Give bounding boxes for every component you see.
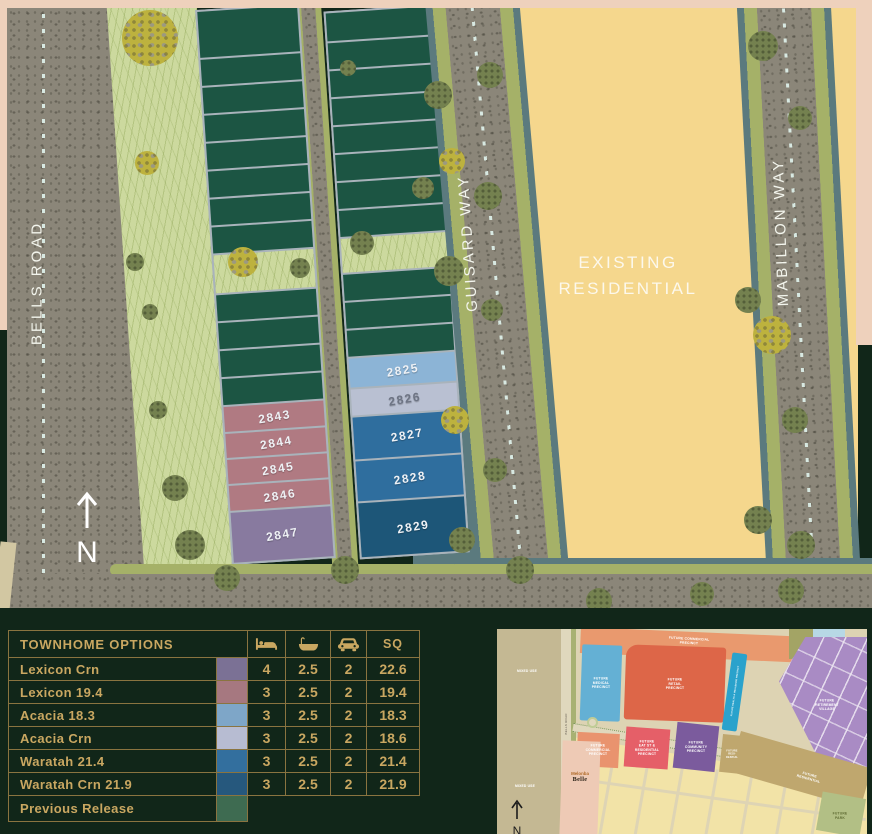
retirement-label: FUTURE RETIREMENT VILLAGE xyxy=(815,699,839,712)
lot-previous-release xyxy=(222,373,324,406)
tree-icon xyxy=(122,10,178,66)
color-swatch xyxy=(216,704,247,726)
lot-number: 2845 xyxy=(260,459,295,478)
car-icon xyxy=(330,631,366,657)
townhome-options-table: TOWNHOME OPTIONS xyxy=(8,630,420,822)
medical-label: FUTURE MEDICAL PRECINCT xyxy=(592,677,611,690)
sq-value: 21.9 xyxy=(366,773,419,795)
tree-icon xyxy=(434,256,464,286)
lot-previous-release xyxy=(210,193,312,226)
estate-block: 2843 2844 2845 2846 2847 xyxy=(106,0,472,608)
table-row: Lexicon Crn 4 2.5 2 22.6 xyxy=(8,657,420,681)
area-label-line2: RESIDENTIAL xyxy=(559,276,698,302)
lot-number: 2827 xyxy=(389,425,424,444)
tree-icon xyxy=(424,81,452,109)
lot-previous-release xyxy=(197,5,300,58)
cars-value: 2 xyxy=(330,704,366,726)
tree-icon xyxy=(214,565,240,591)
lot-number: 2843 xyxy=(257,407,292,426)
lot-number: 2828 xyxy=(392,468,427,487)
bottom-road xyxy=(0,574,872,608)
bed-icon xyxy=(247,631,285,657)
tree-icon xyxy=(331,556,359,584)
tree-icon xyxy=(782,407,808,433)
lot-number: 2826 xyxy=(387,389,422,408)
tree-icon xyxy=(142,304,158,320)
sq-value: 19.4 xyxy=(366,681,419,703)
masterplan-map: 2843 2844 2845 2846 2847 xyxy=(0,0,872,608)
lot-2847[interactable]: 2847 xyxy=(231,506,334,563)
tree-icon xyxy=(135,151,159,175)
lot-2843[interactable]: 2843 xyxy=(224,400,325,432)
belle-logo: Melonba Belle xyxy=(563,767,597,787)
tree-icon xyxy=(690,582,714,606)
tree-icon xyxy=(787,531,815,559)
map-frame-left xyxy=(0,8,7,330)
lot-previous-release xyxy=(216,289,318,322)
lot-number: 2844 xyxy=(259,433,294,452)
lot-number: 2847 xyxy=(265,525,300,544)
tree-icon xyxy=(474,182,502,210)
plan-name: Acacia Crn xyxy=(9,727,216,749)
minimap-north-arrow: N xyxy=(507,797,527,834)
lot-2846[interactable]: 2846 xyxy=(229,479,330,511)
tree-icon xyxy=(744,506,772,534)
color-swatch xyxy=(216,750,247,772)
lot-previous-release xyxy=(218,317,320,350)
tree-icon xyxy=(477,62,503,88)
lot-previous-release xyxy=(206,137,308,170)
table-row: Waratah 21.4 3 2.5 2 21.4 xyxy=(8,749,420,773)
lot-2825[interactable]: 2825 xyxy=(349,352,457,388)
bells-road-label: BELLS ROAD xyxy=(29,221,46,345)
plan-name: Lexicon 19.4 xyxy=(9,681,216,703)
baths-value: 2.5 xyxy=(285,727,330,749)
beds-value: 3 xyxy=(247,681,285,703)
mixed-use-label: MIXED USE xyxy=(517,669,537,673)
previous-release-row: Previous Release xyxy=(8,795,248,822)
plan-name: Waratah Crn 21.9 xyxy=(9,773,216,795)
park-label: FUTURE PARK xyxy=(833,812,848,820)
cars-value: 2 xyxy=(330,750,366,772)
sq-value: 21.4 xyxy=(366,750,419,772)
north-arrow: N xyxy=(66,486,110,570)
beds-value: 3 xyxy=(247,704,285,726)
lot-previous-release xyxy=(200,53,302,86)
table-row: Lexicon 19.4 3 2.5 2 19.4 xyxy=(8,680,420,704)
tree-icon xyxy=(735,287,761,313)
tree-icon xyxy=(753,316,791,354)
table-row: Acacia Crn 3 2.5 2 18.6 xyxy=(8,726,420,750)
retail-label: FUTURE RETAIL PRECINCT xyxy=(666,678,685,691)
bells-road-mini-label: BELLS ROAD xyxy=(564,713,568,734)
baths-value: 2.5 xyxy=(285,681,330,703)
tree-icon xyxy=(441,406,469,434)
lot-previous-release xyxy=(220,345,322,378)
color-swatch xyxy=(216,773,247,795)
lot-previous-release xyxy=(202,81,304,114)
lot-previous-release xyxy=(204,109,306,142)
table-title: TOWNHOME OPTIONS xyxy=(9,631,247,657)
tree-icon xyxy=(778,578,804,604)
svg-text:N: N xyxy=(513,824,522,834)
table-row: Acacia 18.3 3 2.5 2 18.3 xyxy=(8,703,420,727)
roundabout xyxy=(587,717,598,728)
belle-logo-name: Belle xyxy=(569,776,590,783)
mixed-use-label: MIXED USE xyxy=(515,784,535,788)
color-swatch xyxy=(216,727,247,749)
tree-icon xyxy=(449,527,475,553)
tree-icon xyxy=(586,588,612,608)
tree-icon xyxy=(350,231,374,255)
plan-name: Acacia 18.3 xyxy=(9,704,216,726)
plan-name: Previous Release xyxy=(9,796,216,821)
lot-number: 2825 xyxy=(385,360,420,379)
table-header-row: TOWNHOME OPTIONS xyxy=(8,630,420,658)
plan-name: Lexicon Crn xyxy=(9,658,216,680)
area-label-line1: EXISTING xyxy=(559,250,698,276)
baths-value: 2.5 xyxy=(285,704,330,726)
lot-number: 2829 xyxy=(396,517,431,536)
tree-icon xyxy=(228,247,258,277)
baths-value: 2.5 xyxy=(285,750,330,772)
tree-icon xyxy=(506,556,534,584)
cars-value: 2 xyxy=(330,681,366,703)
tree-icon xyxy=(175,530,205,560)
color-swatch xyxy=(216,681,247,703)
tree-icon xyxy=(149,401,167,419)
sq-value: 18.3 xyxy=(366,704,419,726)
tree-icon xyxy=(788,106,812,130)
sq-column-header: SQ xyxy=(366,631,419,657)
site-plan-page: 2843 2844 2845 2846 2847 xyxy=(0,0,872,834)
sq-value: 18.6 xyxy=(366,727,419,749)
table-row: Waratah Crn 21.9 3 2.5 2 21.9 xyxy=(8,772,420,796)
beds-value: 3 xyxy=(247,727,285,749)
tree-icon xyxy=(340,60,356,76)
bath-icon xyxy=(285,631,330,657)
tree-icon xyxy=(439,148,465,174)
lot-number: 2846 xyxy=(262,485,297,504)
cars-value: 2 xyxy=(330,658,366,680)
color-swatch xyxy=(216,658,247,680)
lot-previous-release xyxy=(208,165,310,198)
residential-small-label: FUTURE RESI- DENTIAL xyxy=(726,749,738,759)
tree-icon xyxy=(748,31,778,61)
map-frame-top xyxy=(0,0,872,8)
eat-st-label: FUTURE EAT ST & RESIDENTIAL PRECINCT xyxy=(635,740,659,757)
plan-name: Waratah 21.4 xyxy=(9,750,216,772)
tree-icon xyxy=(290,258,310,278)
color-swatch xyxy=(216,796,247,821)
beds-value: 4 xyxy=(247,658,285,680)
baths-value: 2.5 xyxy=(285,773,330,795)
tree-icon xyxy=(412,177,434,199)
commercial-2-label: FUTURE COMMERCIAL PRECINCT xyxy=(586,744,611,757)
sq-value: 22.6 xyxy=(366,658,419,680)
cars-value: 2 xyxy=(330,773,366,795)
beds-value: 3 xyxy=(247,750,285,772)
cars-value: 2 xyxy=(330,727,366,749)
map-frame-right xyxy=(856,8,872,345)
lot-previous-release xyxy=(212,221,314,254)
beds-value: 3 xyxy=(247,773,285,795)
tree-icon xyxy=(162,475,188,501)
tree-icon xyxy=(126,253,144,271)
lot-2828[interactable]: 2828 xyxy=(355,454,463,501)
svg-text:N: N xyxy=(76,536,98,569)
tree-icon xyxy=(483,458,507,482)
lot-previous-release xyxy=(326,6,434,41)
locality-minimap[interactable]: MIXED USE MIXED USE BELLS ROAD FUTURE CO… xyxy=(497,629,867,834)
community-label: FUTURE COMMUNITY PRECINCT xyxy=(685,741,707,754)
existing-residential-label: EXISTING RESIDENTIAL xyxy=(559,250,698,302)
tree-icon xyxy=(481,299,503,321)
baths-value: 2.5 xyxy=(285,658,330,680)
